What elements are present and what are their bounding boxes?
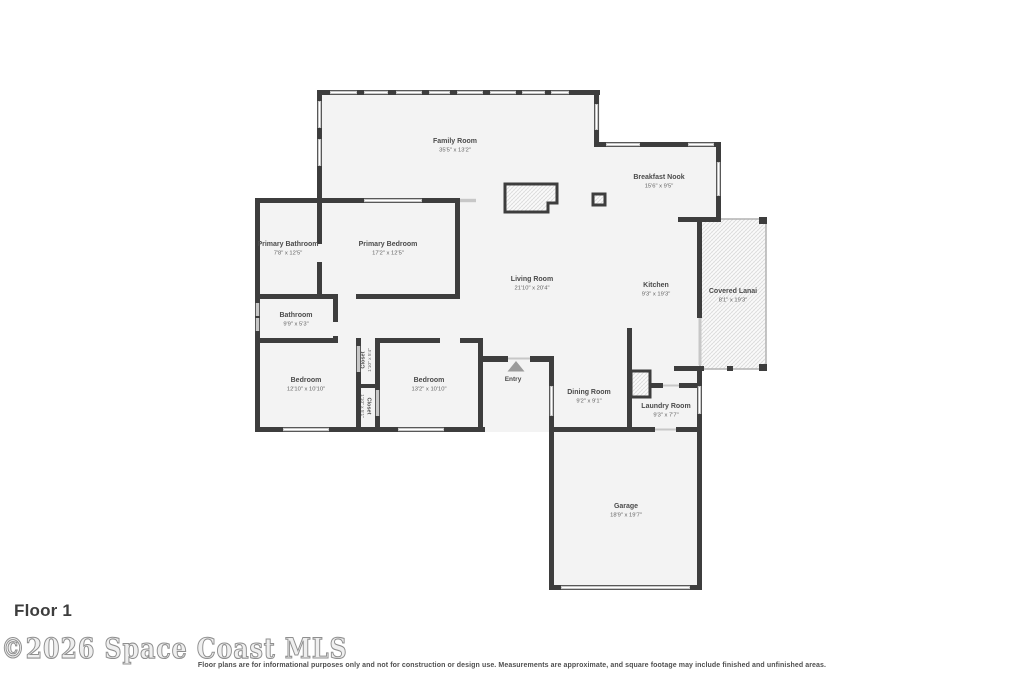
svg-text:Living Room: Living Room <box>511 276 553 283</box>
floorplan-drawing: Family Room 35'5" x 13'2" Breakfast Nook… <box>0 0 1024 683</box>
svg-text:Bedroom: Bedroom <box>291 377 322 384</box>
svg-text:Primary Bathroom: Primary Bathroom <box>257 241 318 248</box>
svg-text:21'10" x 20'4": 21'10" x 20'4" <box>514 286 549 292</box>
svg-text:Kitchen: Kitchen <box>643 282 669 289</box>
svg-text:Covered Lanai: Covered Lanai <box>709 288 757 295</box>
svg-text:Bedroom: Bedroom <box>414 377 445 384</box>
svg-text:13'2" x 10'10": 13'2" x 10'10" <box>411 387 446 393</box>
svg-text:Closet: Closet <box>361 351 367 368</box>
svg-text:Bathroom: Bathroom <box>279 312 312 319</box>
floor-title: Floor 1 <box>14 601 72 621</box>
svg-text:Closet: Closet <box>366 397 372 414</box>
svg-text:1'10" x 5'1": 1'10" x 5'1" <box>359 394 365 418</box>
svg-text:9'3" x 19'3": 9'3" x 19'3" <box>642 292 671 298</box>
svg-text:9'3" x 7'7": 9'3" x 7'7" <box>653 413 678 419</box>
svg-text:Breakfast Nook: Breakfast Nook <box>633 174 684 181</box>
fireplace <box>505 184 557 212</box>
svg-text:35'5" x 13'2": 35'5" x 13'2" <box>439 148 471 154</box>
disclaimer: Floor plans are for informational purpos… <box>0 662 1024 669</box>
watermark: ©2026 Space Coast MLS <box>1 632 348 665</box>
svg-text:15'6" x 9'5": 15'6" x 9'5" <box>645 184 674 190</box>
svg-text:1'10" x 5'4": 1'10" x 5'4" <box>367 348 373 372</box>
svg-text:Entry: Entry <box>505 376 522 383</box>
svg-text:Dining Room: Dining Room <box>567 389 611 396</box>
svg-text:7'8" x 12'5": 7'8" x 12'5" <box>274 251 303 257</box>
svg-text:9'9" x 5'3": 9'9" x 5'3" <box>283 322 308 328</box>
svg-text:9'2" x 9'1": 9'2" x 9'1" <box>576 399 601 405</box>
svg-text:Primary Bedroom: Primary Bedroom <box>359 241 418 248</box>
laundry-appliance <box>631 371 650 397</box>
room-label-entry: Entry <box>505 376 522 383</box>
svg-text:Laundry Room: Laundry Room <box>641 403 690 410</box>
svg-text:17'2" x 12'5": 17'2" x 12'5" <box>372 251 404 257</box>
column <box>593 194 605 205</box>
svg-text:Family Room: Family Room <box>433 138 477 145</box>
svg-text:12'10" x 10'10": 12'10" x 10'10" <box>287 387 325 393</box>
svg-text:8'1" x 19'3": 8'1" x 19'3" <box>719 298 748 304</box>
svg-text:18'9" x 19'7": 18'9" x 19'7" <box>610 513 642 519</box>
svg-text:Garage: Garage <box>614 503 638 510</box>
